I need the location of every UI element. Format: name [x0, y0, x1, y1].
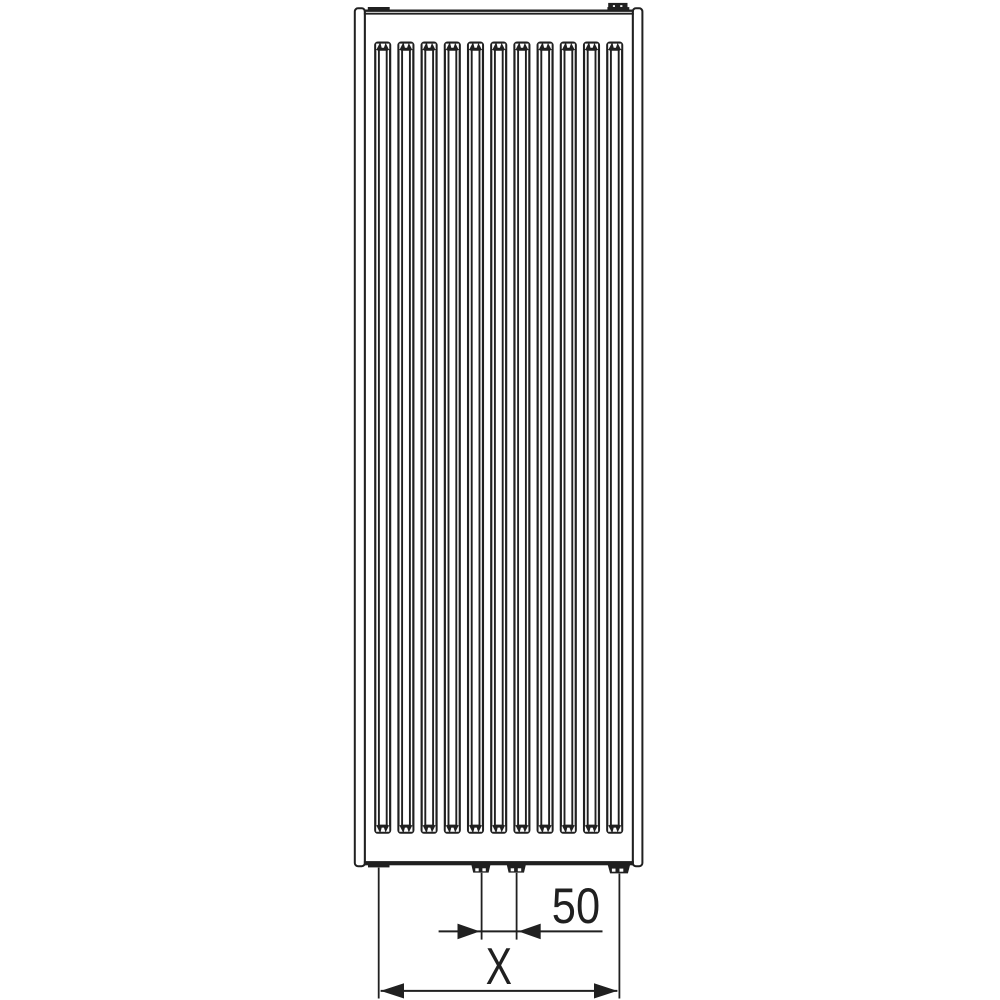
svg-text:X: X — [486, 937, 512, 995]
svg-text:50: 50 — [552, 877, 600, 934]
